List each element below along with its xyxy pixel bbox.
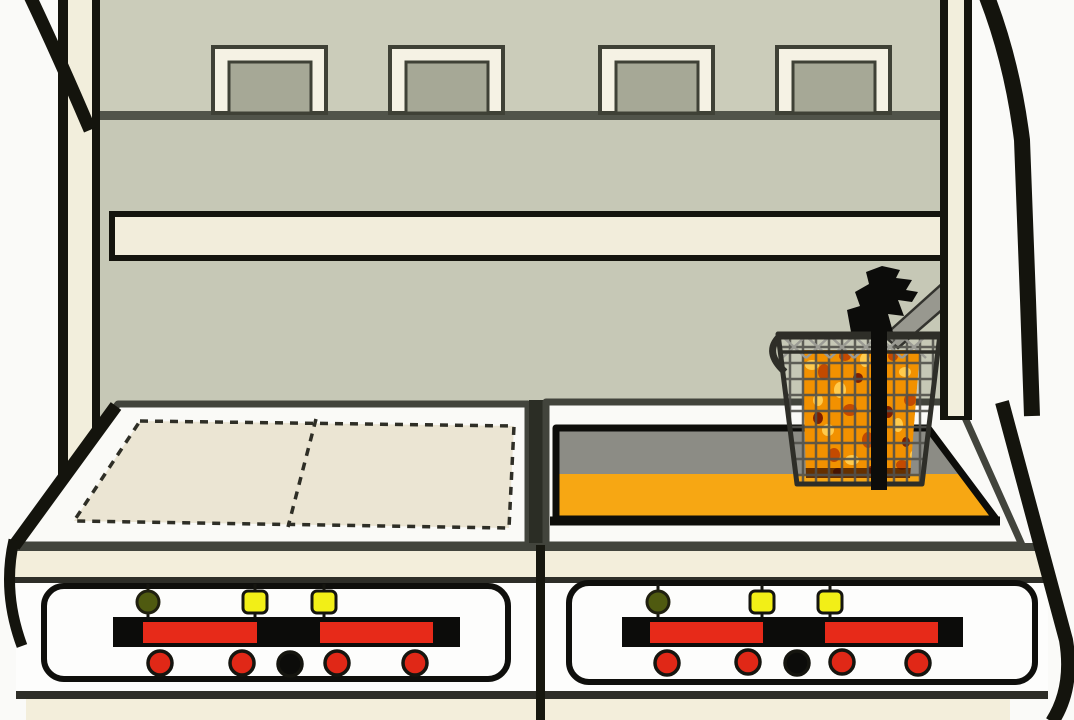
indicator-light-off <box>137 591 159 613</box>
panel-button[interactable] <box>325 651 349 675</box>
right-pillar <box>948 0 964 416</box>
panel-button[interactable] <box>785 651 809 675</box>
vent-inner <box>793 62 875 113</box>
counter-front-line <box>10 543 1050 551</box>
panel-button[interactable] <box>403 651 427 675</box>
vent-inner <box>616 62 698 113</box>
indicator-light-on <box>312 591 336 613</box>
slider-handle-1[interactable] <box>143 622 257 643</box>
panel-button[interactable] <box>906 651 930 675</box>
panel-button[interactable] <box>278 652 302 676</box>
panel-button[interactable] <box>830 650 854 674</box>
vent-inner <box>406 62 488 113</box>
vent-3 <box>600 47 713 113</box>
right-counter <box>546 402 1022 545</box>
panel-button[interactable] <box>148 651 172 675</box>
vent-1 <box>213 47 326 113</box>
front-band-bottom <box>26 699 1010 720</box>
slider-handle-2[interactable] <box>825 622 938 643</box>
griddle-trays <box>74 419 514 528</box>
right-tray[interactable] <box>288 423 514 528</box>
vent-inner <box>229 62 311 113</box>
band-line-2 <box>16 691 1048 699</box>
scene-canvas <box>0 0 1074 720</box>
indicator-light-on <box>750 591 774 613</box>
wall-rail <box>112 214 958 258</box>
indicator-light-off <box>647 591 669 613</box>
oil-surface[interactable] <box>556 474 996 519</box>
slider-handle-1[interactable] <box>650 622 763 643</box>
panel-button[interactable] <box>230 651 254 675</box>
panel-button[interactable] <box>736 650 760 674</box>
indicator-light-on <box>818 591 842 613</box>
fryer-station-scene <box>0 0 1074 720</box>
basket-handle-bar <box>871 298 887 490</box>
vent-4 <box>777 47 890 113</box>
indicator-light-on <box>243 591 267 613</box>
cabinet-divider <box>536 545 545 720</box>
slider-handle-2[interactable] <box>320 622 433 643</box>
front-band-top <box>12 551 1048 577</box>
panel-button[interactable] <box>655 651 679 675</box>
vent-2 <box>390 47 503 113</box>
fryer-vat[interactable] <box>550 428 1000 521</box>
fries <box>800 350 922 480</box>
